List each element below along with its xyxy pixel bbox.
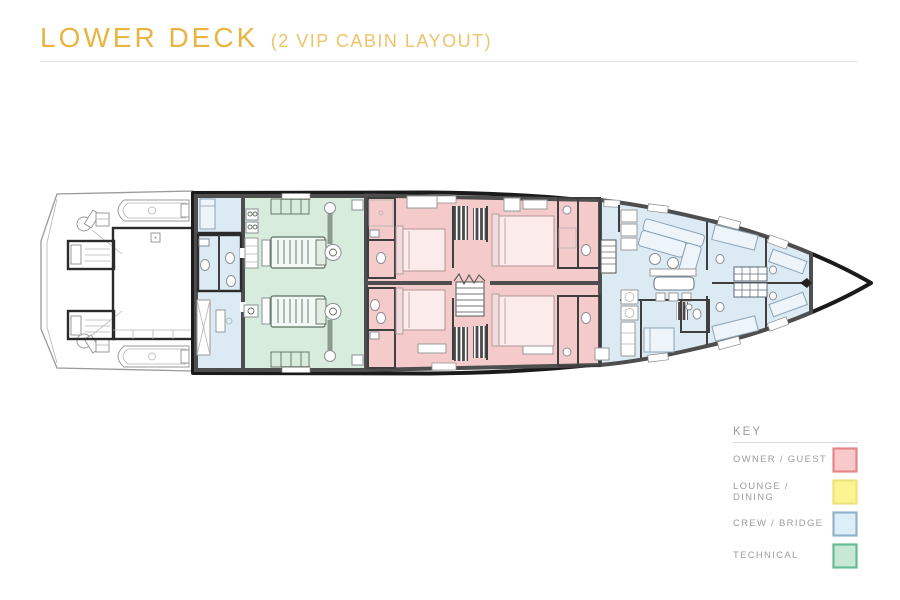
tender-top xyxy=(118,200,189,221)
legend-underline xyxy=(733,442,858,443)
crew-dinette xyxy=(650,269,696,301)
legend-heading: KEY xyxy=(733,426,858,438)
legend-item-owner-guest: OWNER / GUEST xyxy=(733,444,858,475)
legend-item-crew-bridge: CREW / BRIDGE xyxy=(733,508,858,539)
legend-swatch-lounge-dining xyxy=(832,479,858,505)
crew-stairs xyxy=(601,240,616,273)
vip-bed-2 xyxy=(396,288,445,334)
swatch-rect xyxy=(834,512,857,535)
vip-bed-4 xyxy=(492,294,554,346)
crew-bed xyxy=(644,328,674,352)
legend-label: OWNER / GUEST xyxy=(733,454,827,465)
stern-platform xyxy=(41,191,196,371)
swatch-rect xyxy=(834,448,857,471)
legend-swatch-technical xyxy=(832,543,858,569)
legend: KEY OWNER / GUEST LOUNGE / DINING CREW /… xyxy=(733,426,858,571)
wardrobe xyxy=(454,206,468,240)
legend-label: LOUNGE / DINING xyxy=(733,481,832,503)
swatch-rect xyxy=(834,544,857,567)
vip-bed-1 xyxy=(396,226,445,274)
wardrobe xyxy=(473,208,486,240)
swatch-rect xyxy=(834,480,857,503)
wardrobe xyxy=(473,326,486,358)
legend-label: CREW / BRIDGE xyxy=(733,518,823,529)
page: LOWER DECK (2 VIP CABIN LAYOUT) xyxy=(0,0,900,600)
legend-item-lounge-dining: LOUNGE / DINING xyxy=(733,476,858,507)
vip-bed-3 xyxy=(492,214,554,266)
tender-bottom xyxy=(118,346,189,367)
zone-technical xyxy=(243,196,366,370)
legend-swatch-crew-bridge xyxy=(832,511,858,537)
wardrobe xyxy=(454,327,468,361)
legend-label: TECHNICAL xyxy=(733,550,799,561)
legend-item-technical: TECHNICAL xyxy=(733,540,858,571)
legend-swatch-owner-guest xyxy=(832,447,858,473)
